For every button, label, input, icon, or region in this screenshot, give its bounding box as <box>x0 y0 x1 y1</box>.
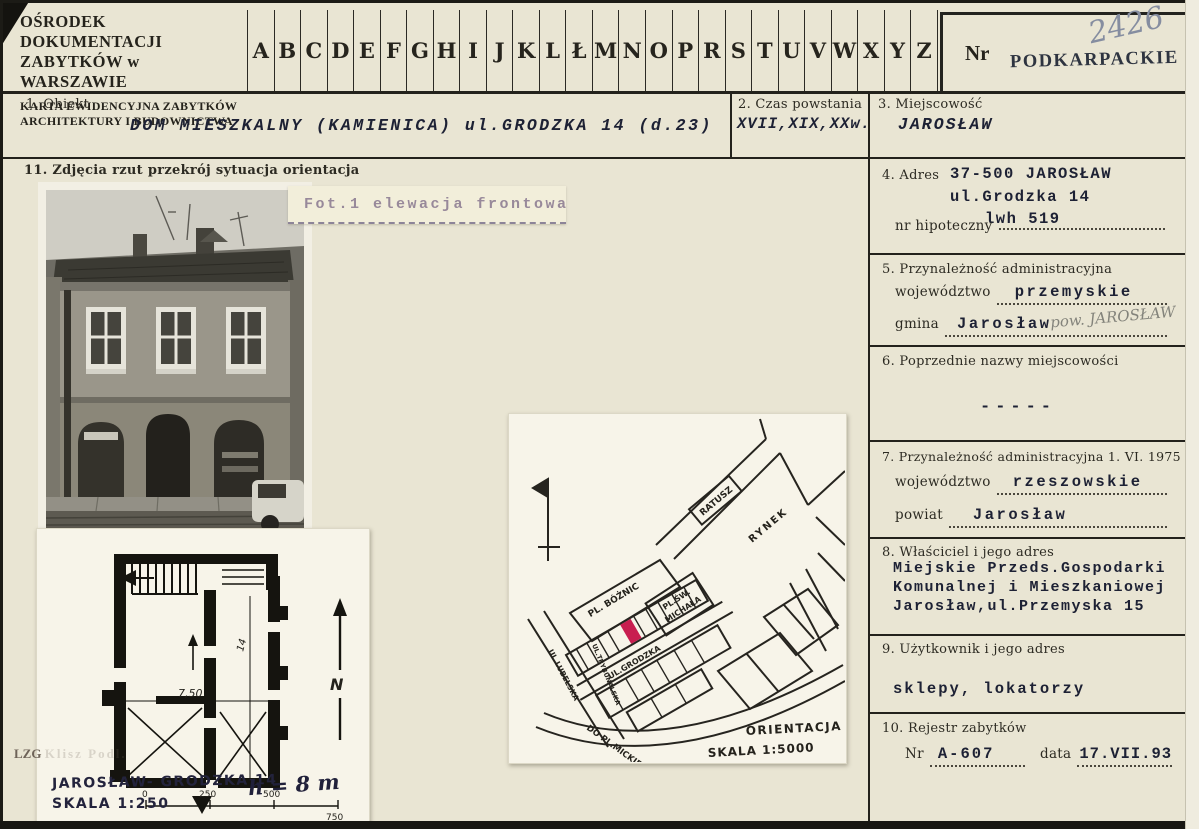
field10-nr-row: Nr A-607 <box>905 745 1025 767</box>
field5-gmina-value: Jarosław <box>957 315 1051 333</box>
facade-photo <box>38 182 312 550</box>
field9-label: 9. Użytkownik i jego adres <box>882 642 1065 657</box>
field4-line1: 37-500 JAROSŁAW <box>950 165 1112 183</box>
letter-cell: O <box>646 10 673 91</box>
header-divider <box>0 91 1185 94</box>
voivodeship-stamp: PODKARPACKIE <box>1009 47 1178 72</box>
letter-cell: I <box>460 10 487 91</box>
field7-woj-row: województwo rzeszowskie <box>895 473 1167 495</box>
letter-cell: G <box>407 10 434 91</box>
alphabet-index: ABCDEFGHIJKLŁMNOPRSTUVWXYZ <box>247 10 938 91</box>
field9-value: sklepy, lokatorzy <box>893 680 1085 698</box>
letter-cell: R <box>699 10 726 91</box>
letter-cell: H <box>434 10 461 91</box>
field4-label: 4. Adres <box>882 168 939 183</box>
blank-line <box>999 212 1165 230</box>
map-right-blocks <box>718 589 838 709</box>
field-divider <box>869 712 1185 714</box>
print-corner-mark: LZG Klisz Podl. <box>14 746 127 762</box>
row-divider <box>0 157 1185 159</box>
letter-cell: P <box>673 10 700 91</box>
letter-cell: X <box>858 10 885 91</box>
field8-label: 8. Właściciel i jego adres <box>882 545 1054 560</box>
letter-cell: D <box>328 10 355 91</box>
letter-cell: L <box>540 10 567 91</box>
powiat-label: powiat <box>895 507 943 523</box>
plan-north-label: N <box>330 675 344 694</box>
hipoteczny-label: nr hipoteczny <box>895 218 993 234</box>
field5-woj-row: województwo przemyskie <box>895 283 1167 305</box>
org-name-line1: OŚRODEK DOKUMENTACJI <box>20 12 246 52</box>
letter-cell: T <box>752 10 779 91</box>
right-neighbor <box>288 280 304 499</box>
photo-caption: Fot.1 elewacja frontowa <box>304 196 569 213</box>
field-divider <box>869 440 1185 442</box>
heritage-record-card: OŚRODEK DOKUMENTACJI ZABYTKÓW w WARSZAWI… <box>0 0 1199 829</box>
vault-hatch <box>128 708 266 776</box>
scan-edge-top <box>0 0 1199 3</box>
letter-cell: V <box>805 10 832 91</box>
woj-line-1975: rzeszowskie <box>997 473 1167 495</box>
field1-value: DOM MIESZKALNY (KAMIENICA) ul.GRODZKA 14… <box>130 116 690 135</box>
letter-cell: C <box>301 10 328 91</box>
scan-edge-bottom <box>0 821 1199 829</box>
scale-tick: 250 <box>199 790 216 800</box>
field10-label: 10. Rejestr zabytków <box>882 721 1027 736</box>
rejestr-data-line: 17.VII.93 <box>1077 745 1172 767</box>
org-name-line2: ZABYTKÓW w WARSZAWIE <box>20 52 246 92</box>
field10-data-value: 17.VII.93 <box>1079 745 1172 763</box>
rejestr-nr-line: A-607 <box>930 745 1025 767</box>
field2-value: XVII,XIX,XXw. <box>737 115 871 133</box>
letter-cell: E <box>354 10 381 91</box>
map-rynek: RYNEK <box>747 506 790 545</box>
woj-line: przemyskie <box>997 283 1167 305</box>
letter-cell: M <box>593 10 620 91</box>
corner-mark-text: LZG <box>14 746 41 761</box>
photo-caption-strip: Fot.1 elewacja frontowa <box>288 186 566 224</box>
letter-cell: A <box>247 10 275 91</box>
letter-cell: W <box>832 10 859 91</box>
gmina-label: gmina <box>895 316 939 332</box>
scan-edge-right <box>1185 0 1199 829</box>
field1-label: 1. Obiekt <box>26 97 89 112</box>
field4-line2: ul.Grodzka 14 <box>950 188 1090 206</box>
orientation-map: RATUSZ RYNEK PL. BÓŻNIC PL.ŚW. MICHAŁA U… <box>508 413 845 762</box>
left-neighbor <box>46 277 62 499</box>
map-skala: SKALA 1:5000 <box>707 740 814 760</box>
field-divider <box>869 634 1185 636</box>
letter-cell: F <box>381 10 408 91</box>
corner-mark-faint: Klisz Podl. <box>45 746 127 761</box>
cornice <box>60 397 290 403</box>
woj-label-1975: województwo <box>895 474 991 490</box>
field8-line1: Miejskie Przeds.Gospodarki <box>893 560 1166 577</box>
letter-cell: N <box>619 10 646 91</box>
field-divider <box>869 345 1185 347</box>
letter-cell: J <box>487 10 514 91</box>
plan-width-dim: 7,50 <box>178 687 203 700</box>
ground-floor-arches <box>78 414 264 497</box>
drainpipe <box>64 290 71 502</box>
woj-label: województwo <box>895 284 991 300</box>
field7-powiat-row: powiat Jarosław <box>895 506 1167 528</box>
scan-corner-shadow <box>0 0 30 48</box>
field11-label: 11. Zdjęcia rzut przekrój sytuacja orien… <box>24 163 360 178</box>
field3-value: JAROSŁAW <box>898 115 993 134</box>
field10-data-row: data 17.VII.93 <box>1040 745 1170 767</box>
letter-cell: S <box>726 10 753 91</box>
field2-label: 2. Czas powstania <box>738 97 862 112</box>
plan-height-dim: 14 <box>235 638 249 653</box>
field8-line2: Komunalnej i Mieszkaniowej <box>893 579 1166 596</box>
field5-label: 5. Przynależność administracyjna <box>882 262 1112 277</box>
field4-hipoteczny-row: nr hipoteczny <box>895 212 1165 234</box>
field-divider <box>869 537 1185 539</box>
plan-scale-label: SKALA 1:250 <box>52 796 169 812</box>
scan-edge-left <box>0 0 3 829</box>
field10-nr-value: A-607 <box>938 745 995 763</box>
letter-cell: Y <box>885 10 912 91</box>
rejestr-data-label: data <box>1040 746 1071 762</box>
map-ul-lubelska: UL.LUBELSKA <box>546 648 581 703</box>
upper-windows <box>86 307 266 374</box>
field-divider <box>869 253 1185 255</box>
letter-cell: B <box>275 10 302 91</box>
divider <box>730 93 732 157</box>
letter-cell: U <box>779 10 806 91</box>
field3-label: 3. Miejscowość <box>878 97 983 112</box>
map-north-icon <box>533 479 560 561</box>
field7-label: 7. Przynależność administracyjna 1. VI. … <box>882 449 1194 464</box>
nr-label: Nr <box>965 41 990 66</box>
north-arrow-icon: N <box>330 598 347 740</box>
field6-value: ----- <box>980 398 1056 417</box>
field7-powiat-value: Jarosław <box>973 506 1067 524</box>
map-parcels: UL.GRODZKA <box>557 572 760 748</box>
field8-line3: Jarosław,ul.Przemyska 15 <box>893 598 1145 615</box>
letter-cell: Ł <box>566 10 593 91</box>
letter-cell: Z <box>911 10 938 91</box>
field6-label: 6. Poprzednie nazwy miejscowości <box>882 354 1119 369</box>
rejestr-nr-label: Nr <box>905 746 924 762</box>
field5-woj-value: przemyskie <box>1015 283 1133 301</box>
powiat-line: Jarosław <box>949 506 1167 528</box>
letter-cell: K <box>513 10 540 91</box>
field7-woj-value: rzeszowskie <box>1013 473 1143 491</box>
